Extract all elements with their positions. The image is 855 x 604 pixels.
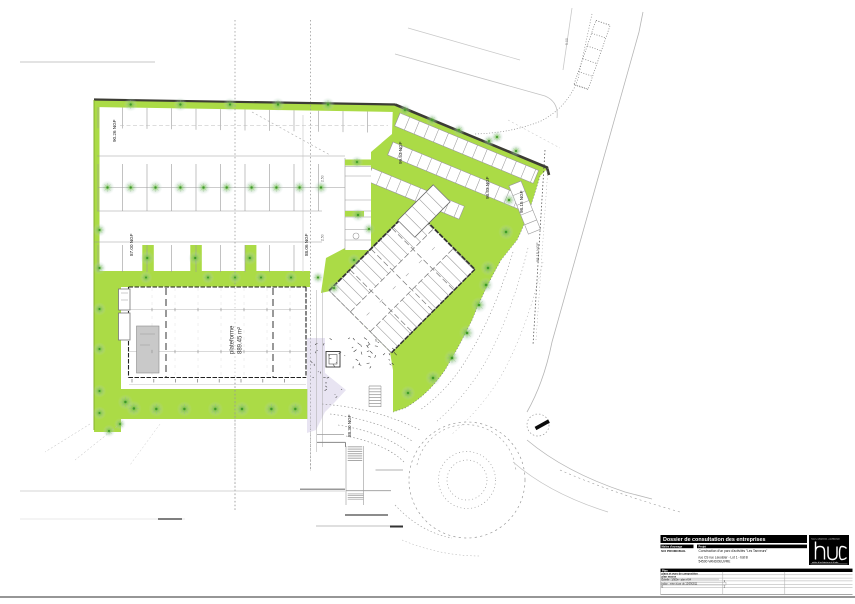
svg-text:90.26 NGF: 90.26 NGF [112, 119, 117, 142]
svg-text:98.15 NGF: 98.15 NGF [519, 190, 524, 213]
svg-text:5.00: 5.00 [565, 38, 569, 45]
svg-text:Construction d'un parc d'activ: Construction d'un parc d'activités "Les … [699, 549, 768, 553]
svg-text:889.45 m²: 889.45 m² [238, 327, 244, 354]
svg-text:SCI PROMOBAIL: SCI PROMOBAIL [661, 549, 686, 553]
svg-text:indice : mise à jour du 12/09/: indice : mise à jour du 12/09/2011 [662, 582, 698, 585]
svg-text:54500 VANDOEUVRE: 54500 VANDOEUVRE [699, 559, 731, 563]
svg-text:98.53 NGF: 98.53 NGF [485, 176, 490, 199]
svg-text:Échelle : 1/500e - plan n°04: Échelle : 1/500e - plan n°04 [662, 579, 692, 582]
svg-text:plans et vues de composition: plans et vues de composition [662, 571, 699, 575]
svg-text:98.15 NGF: 98.15 NGF [535, 242, 540, 262]
svg-text:atelier d'architecture et d'ur: atelier d'architecture et d'urba [812, 561, 839, 564]
svg-text:88.30 NGF: 88.30 NGF [347, 414, 352, 437]
svg-text:88.06 NGF: 88.06 NGF [304, 233, 309, 256]
svg-text:Dossier de consultation des en: Dossier de consultation des entreprises [663, 537, 765, 543]
svg-text:haut + urbanisme + architectur: haut + urbanisme + architecture [812, 538, 841, 541]
svg-text:87.00 NGF: 87.00 NGF [129, 233, 134, 256]
svg-text:plateforme: plateforme [230, 325, 236, 354]
svg-text:2.50: 2.50 [321, 234, 325, 241]
svg-text:99.53 NGF: 99.53 NGF [398, 141, 403, 164]
svg-text:Maître d'ouvrage: Maître d'ouvrage [662, 545, 683, 549]
svg-text:E: E [662, 584, 664, 588]
